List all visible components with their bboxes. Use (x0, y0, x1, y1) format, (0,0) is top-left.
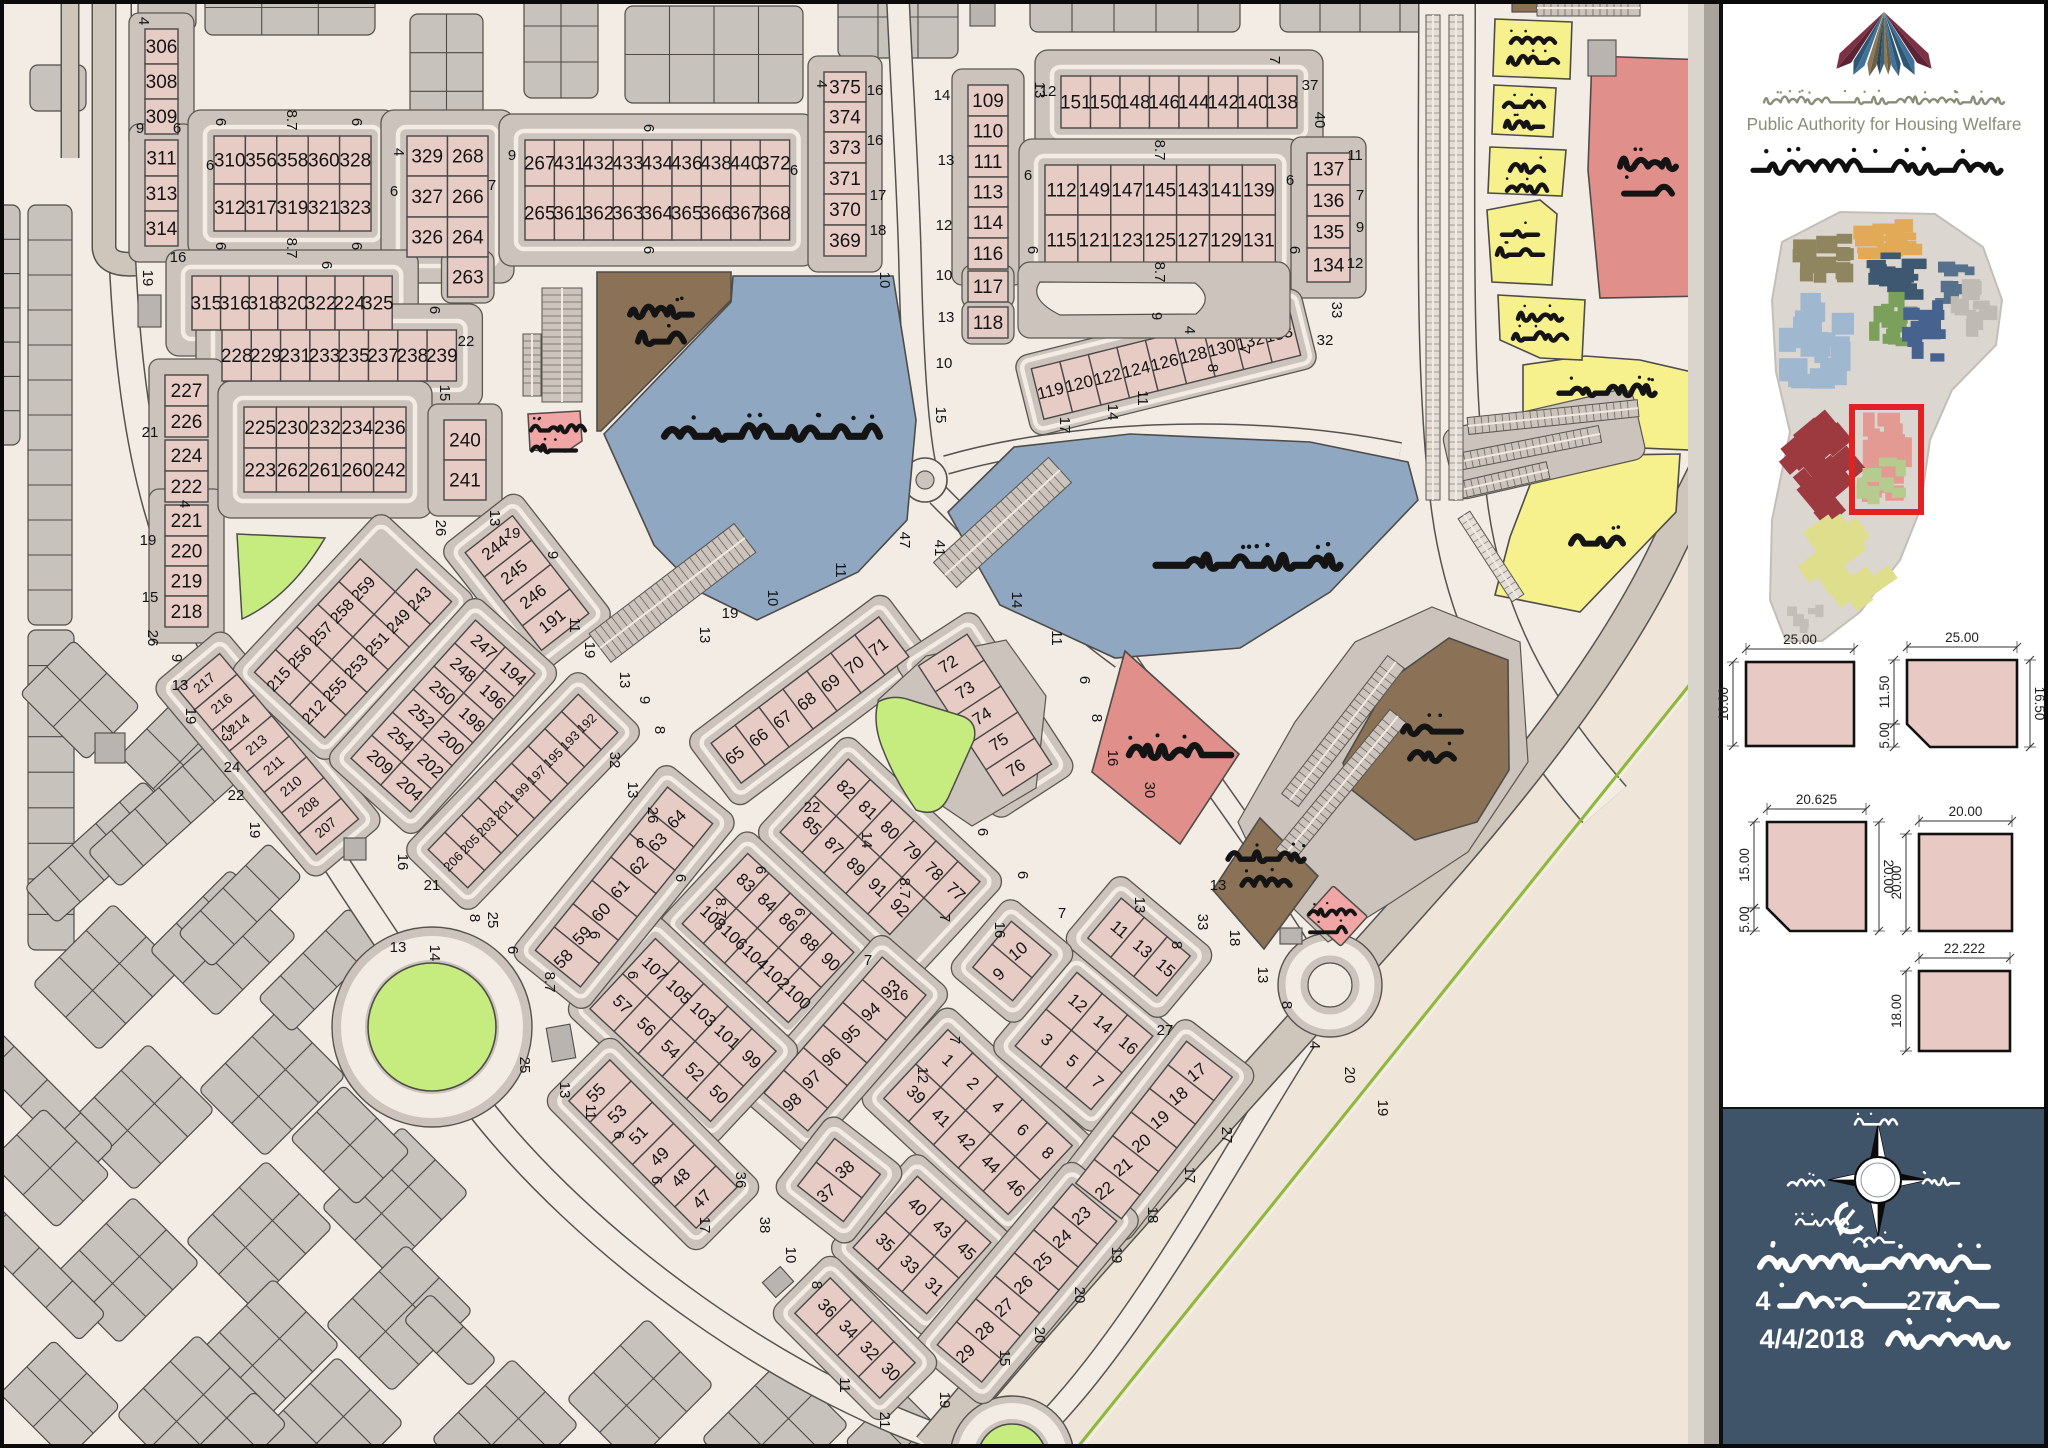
svg-text:147: 147 (1111, 181, 1143, 202)
svg-text:19: 19 (581, 642, 598, 659)
svg-text:4: 4 (176, 500, 193, 508)
svg-text:13: 13 (696, 627, 713, 644)
svg-text:228: 228 (221, 346, 253, 367)
svg-text:19: 19 (182, 708, 199, 725)
svg-text:325: 325 (362, 294, 394, 315)
svg-text:328: 328 (339, 151, 371, 172)
svg-text:241: 241 (449, 471, 481, 492)
svg-text:21: 21 (876, 1412, 893, 1429)
svg-text:20.00: 20.00 (1949, 804, 1983, 819)
svg-text:11: 11 (1048, 630, 1065, 646)
svg-text:6: 6 (318, 261, 335, 269)
svg-text:7: 7 (1058, 905, 1066, 922)
svg-text:116: 116 (973, 244, 1003, 265)
svg-text:11: 11 (566, 617, 583, 633)
svg-text:7: 7 (936, 914, 953, 922)
svg-text:-: - (1834, 1282, 1843, 1312)
svg-text:27: 27 (1157, 1022, 1174, 1039)
svg-text:8: 8 (1088, 714, 1105, 722)
svg-text:6: 6 (1024, 167, 1032, 184)
svg-text:9: 9 (1148, 312, 1165, 320)
svg-text:114: 114 (973, 213, 1004, 234)
svg-text:6: 6 (640, 246, 657, 254)
svg-text:17: 17 (696, 1217, 713, 1234)
svg-text:17: 17 (1056, 417, 1073, 434)
svg-text:4: 4 (1306, 1041, 1323, 1049)
svg-text:318: 318 (248, 294, 280, 315)
svg-text:232: 232 (309, 418, 341, 439)
svg-text:13: 13 (172, 677, 189, 694)
svg-text:6: 6 (1076, 676, 1093, 684)
svg-text:10: 10 (876, 272, 893, 289)
svg-text:6: 6 (348, 118, 365, 126)
svg-text:41: 41 (931, 540, 948, 557)
svg-text:13: 13 (624, 782, 641, 799)
svg-text:8: 8 (808, 1281, 825, 1289)
svg-text:358: 358 (277, 151, 309, 172)
svg-text:6: 6 (504, 946, 521, 954)
svg-text:6: 6 (672, 874, 689, 882)
svg-text:261: 261 (309, 461, 341, 482)
svg-text:11: 11 (1134, 390, 1151, 406)
svg-text:23: 23 (218, 725, 235, 742)
svg-text:13: 13 (1210, 877, 1227, 894)
svg-text:10: 10 (782, 1247, 799, 1264)
svg-text:313: 313 (146, 184, 178, 205)
svg-text:14: 14 (858, 832, 875, 849)
svg-text:7: 7 (864, 952, 872, 969)
svg-text:11: 11 (832, 562, 849, 578)
svg-text:9: 9 (544, 551, 561, 559)
svg-text:142: 142 (1207, 93, 1239, 114)
svg-text:121: 121 (1079, 231, 1111, 252)
svg-text:32: 32 (1317, 332, 1334, 349)
svg-text:32: 32 (606, 752, 623, 769)
svg-text:220: 220 (171, 542, 203, 563)
svg-text:33: 33 (1194, 914, 1211, 931)
svg-text:14: 14 (1104, 404, 1121, 421)
svg-text:20: 20 (1341, 1067, 1358, 1084)
svg-text:15: 15 (142, 589, 159, 606)
svg-text:372: 372 (759, 154, 791, 175)
svg-text:143: 143 (1177, 181, 1209, 202)
svg-text:16: 16 (867, 82, 884, 99)
svg-text:312: 312 (214, 198, 246, 219)
svg-text:9: 9 (136, 120, 144, 137)
svg-text:14: 14 (934, 87, 951, 104)
svg-text:7: 7 (946, 1036, 963, 1044)
svg-text:268: 268 (452, 147, 484, 168)
svg-text:266: 266 (452, 187, 484, 208)
svg-text:368: 368 (759, 204, 791, 225)
svg-text:125: 125 (1144, 231, 1176, 252)
svg-text:11: 11 (836, 1377, 853, 1393)
svg-text:33: 33 (1328, 302, 1345, 319)
svg-text:20.00: 20.00 (1889, 866, 1904, 900)
svg-text:6: 6 (636, 835, 644, 852)
svg-text:139: 139 (1243, 181, 1275, 202)
svg-text:123: 123 (1111, 231, 1143, 252)
svg-text:436: 436 (671, 154, 703, 175)
svg-text:109: 109 (972, 91, 1004, 112)
svg-text:6: 6 (348, 242, 365, 250)
svg-text:18.00: 18.00 (1889, 994, 1904, 1028)
svg-text:18: 18 (870, 222, 887, 239)
svg-text:16: 16 (1104, 750, 1121, 767)
svg-text:8: 8 (466, 914, 483, 922)
svg-text:226: 226 (171, 412, 203, 433)
svg-text:365: 365 (671, 204, 703, 225)
svg-text:19: 19 (140, 532, 157, 549)
svg-text:16: 16 (892, 987, 909, 1004)
svg-text:11: 11 (1347, 147, 1363, 164)
svg-text:6: 6 (212, 242, 229, 250)
svg-text:22: 22 (458, 333, 475, 350)
svg-text:6: 6 (586, 931, 603, 939)
svg-text:8.7: 8.7 (283, 238, 300, 259)
svg-text:239: 239 (426, 346, 458, 367)
svg-text:6: 6 (648, 1176, 665, 1184)
svg-text:112: 112 (1046, 181, 1076, 202)
svg-text:19: 19 (246, 822, 263, 839)
svg-text:363: 363 (612, 204, 644, 225)
svg-text:19: 19 (139, 270, 156, 287)
svg-text:6: 6 (974, 828, 991, 836)
svg-text:9: 9 (636, 696, 653, 704)
svg-text:6: 6 (640, 124, 657, 132)
svg-text:308: 308 (146, 72, 178, 93)
svg-text:7: 7 (1356, 187, 1364, 204)
svg-text:25.00: 25.00 (1945, 630, 1979, 645)
svg-text:148: 148 (1119, 93, 1151, 114)
svg-text:431: 431 (553, 154, 585, 175)
svg-text:6: 6 (1024, 246, 1041, 254)
svg-text:6: 6 (173, 120, 181, 137)
svg-text:140: 140 (1237, 93, 1269, 114)
svg-text:15: 15 (932, 407, 949, 424)
svg-text:149: 149 (1079, 181, 1111, 202)
svg-text:13: 13 (1131, 897, 1148, 914)
svg-text:7: 7 (1266, 56, 1283, 64)
svg-text:319: 319 (277, 198, 309, 219)
svg-text:138: 138 (1266, 93, 1298, 114)
svg-text:306: 306 (146, 37, 178, 58)
svg-text:224: 224 (333, 294, 365, 315)
svg-text:374: 374 (829, 108, 861, 129)
svg-text:6: 6 (426, 306, 443, 314)
svg-text:24: 24 (224, 759, 241, 776)
svg-text:135: 135 (1313, 223, 1345, 244)
svg-text:17: 17 (1181, 1167, 1198, 1184)
svg-text:238: 238 (397, 346, 429, 367)
svg-text:373: 373 (829, 138, 861, 159)
svg-text:223: 223 (244, 461, 276, 482)
svg-text:129: 129 (1210, 231, 1242, 252)
svg-text:26: 26 (432, 520, 449, 537)
svg-text:321: 321 (308, 198, 340, 219)
svg-text:311: 311 (146, 149, 176, 170)
svg-text:264: 264 (452, 228, 484, 249)
svg-text:6: 6 (1014, 871, 1031, 879)
svg-text:6: 6 (206, 157, 214, 174)
svg-text:27: 27 (1218, 1127, 1235, 1144)
svg-text:6: 6 (1286, 246, 1303, 254)
svg-text:16: 16 (170, 249, 187, 266)
svg-text:362: 362 (583, 204, 615, 225)
svg-text:10: 10 (936, 267, 953, 284)
svg-text:4: 4 (813, 80, 830, 88)
svg-text:19: 19 (1374, 1100, 1391, 1117)
svg-text:8: 8 (1278, 1001, 1295, 1009)
svg-text:8.7: 8.7 (896, 878, 913, 899)
svg-text:9: 9 (1356, 219, 1364, 236)
svg-text:19: 19 (936, 1392, 953, 1409)
svg-text:16: 16 (867, 132, 884, 149)
svg-text:13: 13 (390, 939, 407, 956)
svg-text:8.7: 8.7 (1151, 262, 1168, 283)
svg-text:6: 6 (610, 1131, 627, 1139)
svg-text:12: 12 (1347, 255, 1364, 272)
svg-text:323: 323 (339, 198, 371, 219)
svg-text:13: 13 (938, 309, 955, 326)
svg-text:4: 4 (1755, 1286, 1770, 1316)
svg-text:117: 117 (973, 277, 1003, 298)
svg-text:277: 277 (1906, 1286, 1951, 1316)
svg-text:26: 26 (644, 807, 661, 824)
svg-text:242: 242 (374, 461, 406, 482)
svg-text:144: 144 (1178, 93, 1210, 114)
svg-text:322: 322 (305, 294, 337, 315)
svg-text:21: 21 (142, 424, 159, 441)
svg-text:9: 9 (168, 654, 185, 662)
svg-text:8.7: 8.7 (1151, 140, 1168, 161)
svg-text:218: 218 (171, 602, 203, 623)
svg-text:146: 146 (1148, 93, 1180, 114)
svg-text:375: 375 (829, 78, 861, 99)
svg-text:329: 329 (411, 147, 443, 168)
svg-text:134: 134 (1313, 256, 1345, 277)
svg-text:265: 265 (524, 204, 556, 225)
svg-text:6: 6 (390, 183, 398, 200)
svg-text:145: 145 (1144, 181, 1176, 202)
svg-text:19: 19 (1108, 1247, 1125, 1264)
svg-text:13: 13 (556, 1082, 573, 1099)
svg-text:7: 7 (488, 177, 496, 194)
svg-text:5.00: 5.00 (1737, 906, 1752, 932)
svg-text:4: 4 (1181, 326, 1198, 334)
svg-text:326: 326 (411, 228, 443, 249)
svg-text:356: 356 (245, 151, 277, 172)
svg-text:16: 16 (991, 922, 1008, 939)
svg-text:6: 6 (212, 118, 229, 126)
svg-text:5.00: 5.00 (1877, 722, 1892, 748)
svg-text:141: 141 (1210, 181, 1242, 202)
svg-text:433: 433 (612, 154, 644, 175)
svg-text:11.50: 11.50 (1877, 676, 1892, 709)
svg-text:16.00: 16.00 (1716, 687, 1731, 721)
svg-text:111: 111 (974, 152, 1003, 173)
svg-text:22.222: 22.222 (1944, 941, 1985, 956)
svg-text:219: 219 (171, 572, 203, 593)
svg-text:233: 233 (309, 346, 341, 367)
svg-text:12: 12 (914, 1067, 931, 1084)
svg-text:13: 13 (1254, 967, 1271, 984)
svg-text:25.00: 25.00 (1783, 632, 1817, 647)
svg-text:38: 38 (756, 1217, 773, 1234)
svg-text:21: 21 (424, 877, 441, 894)
svg-text:37: 37 (1302, 77, 1319, 94)
svg-text:6: 6 (790, 162, 798, 179)
svg-text:131: 131 (1243, 231, 1275, 252)
svg-text:15: 15 (436, 385, 453, 402)
svg-text:221: 221 (171, 511, 203, 532)
svg-text:310: 310 (214, 151, 246, 172)
svg-text:314: 314 (146, 219, 178, 240)
svg-text:20.625: 20.625 (1796, 792, 1837, 807)
svg-text:151: 151 (1060, 93, 1092, 114)
svg-text:Public Authority for Housing W: Public Authority for Housing Welfare (1747, 114, 2022, 134)
svg-text:4/4/2018: 4/4/2018 (1759, 1324, 1864, 1354)
svg-text:234: 234 (342, 418, 374, 439)
svg-text:235: 235 (338, 346, 370, 367)
svg-text:6: 6 (752, 866, 769, 874)
svg-text:432: 432 (583, 154, 615, 175)
svg-text:22: 22 (804, 799, 821, 816)
svg-text:360: 360 (308, 151, 340, 172)
svg-text:14: 14 (426, 945, 443, 962)
svg-text:231: 231 (279, 346, 311, 367)
svg-text:434: 434 (641, 154, 673, 175)
svg-text:227: 227 (171, 381, 203, 402)
svg-text:225: 225 (244, 418, 276, 439)
svg-text:236: 236 (374, 418, 406, 439)
svg-text:19: 19 (504, 525, 521, 542)
svg-text:16: 16 (394, 854, 411, 871)
svg-text:315: 315 (190, 294, 222, 315)
svg-text:20: 20 (1031, 1327, 1048, 1344)
svg-text:361: 361 (553, 204, 585, 225)
svg-text:47: 47 (896, 532, 913, 549)
svg-text:17: 17 (870, 187, 887, 204)
svg-text:12: 12 (1040, 83, 1057, 100)
svg-text:367: 367 (730, 204, 762, 225)
svg-text:12: 12 (936, 217, 953, 234)
svg-text:127: 127 (1177, 231, 1209, 252)
svg-text:8.7: 8.7 (283, 110, 300, 131)
svg-text:113: 113 (973, 183, 1003, 204)
svg-text:11: 11 (582, 1104, 599, 1120)
svg-text:316: 316 (219, 294, 251, 315)
svg-text:8: 8 (1168, 941, 1185, 949)
svg-text:10: 10 (764, 590, 781, 607)
svg-text:14: 14 (1008, 592, 1025, 609)
svg-text:15.00: 15.00 (1737, 848, 1752, 882)
svg-text:320: 320 (276, 294, 308, 315)
svg-text:7: 7 (1236, 346, 1253, 354)
svg-text:364: 364 (641, 204, 673, 225)
svg-text:18: 18 (1226, 930, 1243, 947)
svg-text:6: 6 (624, 971, 641, 979)
svg-text:15: 15 (996, 1350, 1013, 1367)
svg-text:9: 9 (508, 147, 516, 164)
svg-text:22: 22 (228, 787, 245, 804)
svg-text:118: 118 (973, 313, 1003, 334)
svg-text:36: 36 (732, 1172, 749, 1189)
svg-text:4: 4 (135, 17, 152, 25)
svg-text:369: 369 (829, 231, 861, 252)
svg-text:8: 8 (1204, 364, 1221, 372)
svg-text:229: 229 (250, 346, 282, 367)
svg-text:240: 240 (449, 431, 481, 452)
svg-text:8.7: 8.7 (712, 898, 729, 919)
svg-text:4: 4 (390, 148, 407, 156)
svg-text:137: 137 (1313, 160, 1345, 181)
svg-text:262: 262 (277, 461, 309, 482)
svg-text:110: 110 (973, 122, 1003, 143)
svg-text:327: 327 (411, 187, 443, 208)
svg-text:40: 40 (1311, 112, 1328, 129)
svg-text:237: 237 (367, 346, 399, 367)
svg-text:438: 438 (700, 154, 732, 175)
svg-text:224: 224 (171, 446, 203, 467)
svg-text:26: 26 (144, 630, 161, 647)
svg-text:13: 13 (486, 510, 503, 527)
svg-text:366: 366 (700, 204, 732, 225)
svg-text:13: 13 (616, 672, 633, 689)
svg-text:150: 150 (1089, 93, 1121, 114)
svg-text:317: 317 (245, 198, 277, 219)
svg-text:25: 25 (484, 912, 501, 929)
svg-text:8.7: 8.7 (541, 972, 558, 993)
svg-text:20: 20 (1071, 1287, 1088, 1304)
svg-text:440: 440 (730, 154, 762, 175)
svg-text:370: 370 (829, 200, 861, 221)
svg-text:115: 115 (1046, 231, 1076, 252)
svg-text:267: 267 (524, 154, 556, 175)
svg-text:263: 263 (452, 268, 484, 289)
svg-text:222: 222 (171, 477, 203, 498)
svg-text:6: 6 (791, 908, 808, 916)
svg-text:19: 19 (722, 605, 739, 622)
svg-text:30: 30 (1141, 782, 1158, 799)
svg-text:371: 371 (829, 169, 861, 190)
svg-text:25: 25 (516, 1057, 533, 1074)
svg-text:13: 13 (938, 152, 955, 169)
svg-text:230: 230 (277, 418, 309, 439)
svg-text:260: 260 (342, 461, 374, 482)
svg-text:8: 8 (651, 726, 668, 734)
svg-text:136: 136 (1313, 191, 1345, 212)
svg-text:18: 18 (1144, 1207, 1161, 1224)
svg-text:10: 10 (936, 355, 953, 372)
svg-text:6: 6 (1286, 172, 1294, 189)
